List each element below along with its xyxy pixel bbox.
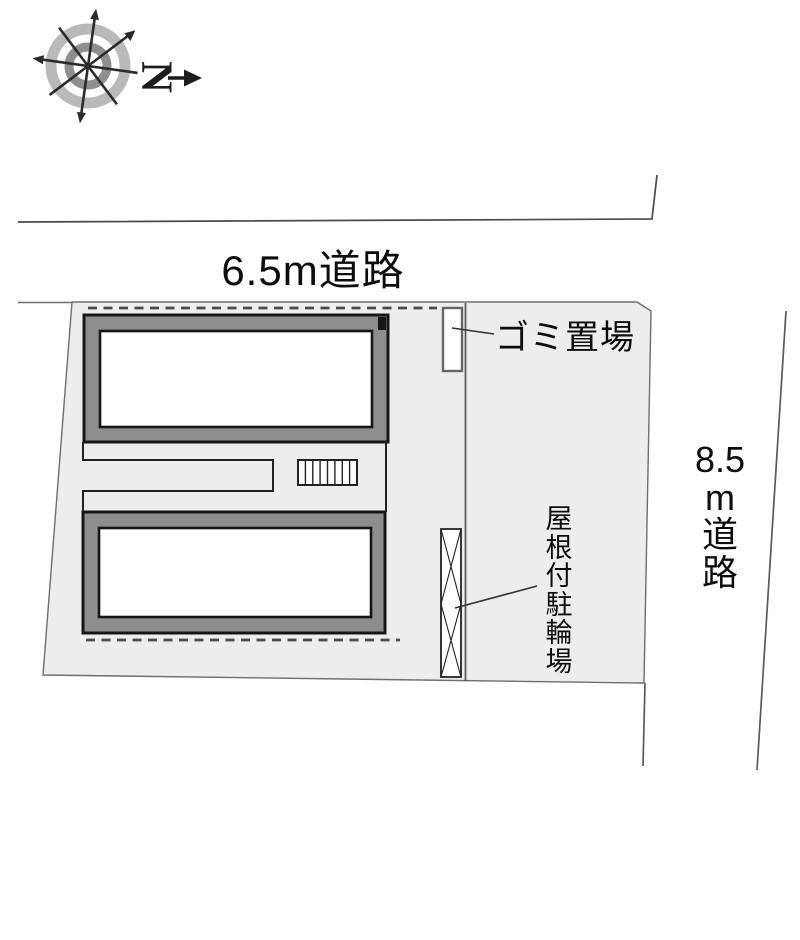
vertical-text-line: 付: [539, 562, 579, 591]
road-top-edge-line: [18, 175, 657, 222]
building-corner-mark: [378, 317, 386, 330]
vertical-text-line: 8.5: [686, 441, 754, 479]
site-plan-page: N: [0, 0, 800, 940]
garbage-label: ゴミ置場: [495, 310, 635, 359]
bicycle-parking-label: 屋根付駐輪場: [539, 505, 579, 676]
vertical-text-line: 道: [686, 516, 754, 554]
building-south: [83, 512, 385, 633]
compass-icon: N: [24, 1, 202, 131]
road-top-label: 6.5m道路: [168, 237, 458, 298]
vertical-text-line: 駐: [539, 591, 579, 620]
building-north: [84, 315, 388, 442]
stairs-icon: [298, 460, 357, 485]
vertical-text-line: 輪: [539, 619, 579, 648]
vertical-text-line: 場: [539, 648, 579, 677]
garbage-box: [443, 308, 462, 371]
site-plan-drawing: N: [0, 0, 800, 940]
vertical-text-line: m: [686, 479, 754, 517]
road-right-label: 8.5m道路: [686, 441, 754, 591]
bicycle-parking-box: [441, 529, 461, 677]
vertical-text-line: 根: [539, 534, 579, 563]
vertical-text-line: 路: [686, 554, 754, 592]
vertical-text-line: 屋: [539, 505, 579, 534]
road-right-edge-line: [757, 311, 786, 770]
road-south-edge-line: [643, 683, 645, 766]
